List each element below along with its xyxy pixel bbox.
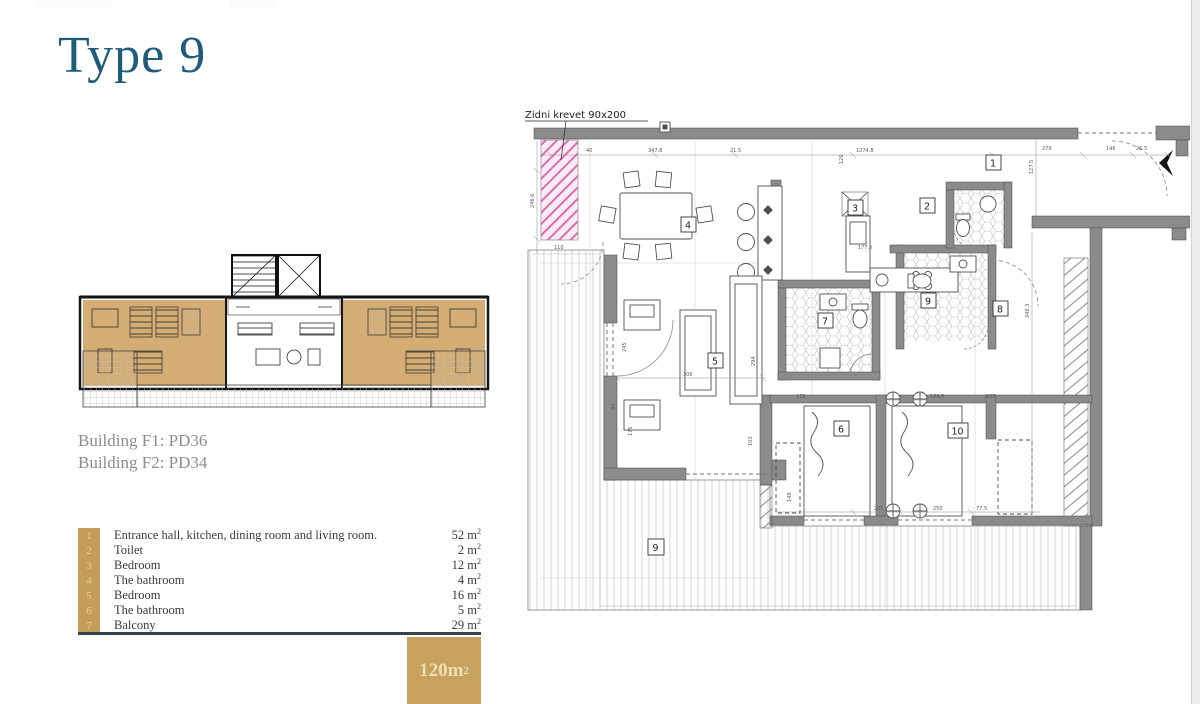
svg-text:1274.8: 1274.8 — [856, 148, 874, 154]
legend-area: 16 m2 — [417, 587, 481, 603]
legend-area: 52 m2 — [417, 527, 481, 543]
legend-label: Toilet — [100, 543, 417, 558]
legend-num: 3 — [78, 558, 100, 573]
svg-text:250: 250 — [933, 506, 943, 512]
svg-text:347.8: 347.8 — [648, 148, 662, 154]
legend-label: Bedroom — [100, 558, 417, 573]
building-f2: Building F2: PD34 — [78, 452, 207, 474]
entrance-arrow-icon — [1159, 150, 1173, 176]
wall-bed-annotation: Zidni krevet 90x200 — [525, 110, 626, 121]
legend-row: 6 The bathroom 5 m2 — [78, 603, 481, 618]
svg-text:10: 10 — [952, 427, 964, 438]
svg-text:127.5: 127.5 — [1029, 160, 1035, 174]
svg-text:26.5: 26.5 — [1136, 146, 1147, 152]
legend-row: 7 Balcony 29 m2 — [78, 618, 481, 633]
header-remnant-2 — [229, 0, 276, 7]
svg-text:94: 94 — [611, 404, 617, 410]
svg-text:146: 146 — [1106, 146, 1116, 152]
legend-num: 7 — [78, 618, 100, 633]
svg-text:103: 103 — [748, 436, 754, 446]
overview-floorplan — [78, 253, 490, 416]
svg-text:122: 122 — [796, 394, 806, 400]
page-title: Type 9 — [58, 26, 206, 85]
legend-row: 3 Bedroom 12 m2 — [78, 558, 481, 573]
legend-label: Balcony — [100, 618, 417, 633]
building-labels: Building F1: PD36 Building F2: PD34 — [78, 430, 207, 475]
svg-text:177.5: 177.5 — [858, 245, 872, 251]
legend-label: The bathroom — [100, 573, 417, 588]
legend-label: The bathroom — [100, 603, 417, 618]
svg-text:3: 3 — [852, 204, 858, 215]
svg-text:7: 7 — [822, 317, 828, 328]
room-legend: 1 Entrance hall, kitchen, dining room an… — [78, 528, 481, 633]
legend-area: 2 m2 — [417, 542, 481, 558]
legend-num: 6 — [78, 603, 100, 618]
legend-area: 12 m2 — [417, 557, 481, 573]
building-f1: Building F1: PD36 — [78, 430, 207, 452]
legend-num: 2 — [78, 543, 100, 558]
legend-row: 4 The bathroom 4 m2 — [78, 573, 481, 588]
legend-num: 1 — [78, 528, 100, 543]
legend-area: 4 m2 — [417, 572, 481, 588]
legend-area: 5 m2 — [417, 602, 481, 618]
stair-hatch — [1064, 258, 1088, 526]
svg-text:77.5: 77.5 — [976, 506, 987, 512]
svg-text:306: 306 — [683, 372, 693, 378]
svg-text:6: 6 — [838, 425, 844, 436]
svg-text:9: 9 — [925, 297, 931, 308]
svg-text:279: 279 — [1042, 146, 1052, 152]
legend-num: 5 — [78, 588, 100, 603]
svg-text:126: 126 — [839, 154, 845, 164]
header-remnant-1 — [35, 0, 111, 7]
svg-text:108: 108 — [986, 394, 996, 400]
svg-text:148: 148 — [787, 492, 793, 502]
svg-text:348.3: 348.3 — [1025, 304, 1031, 318]
svg-text:169.5: 169.5 — [930, 394, 944, 400]
svg-text:1: 1 — [990, 159, 996, 170]
svg-text:205: 205 — [874, 506, 884, 512]
svg-text:21.5: 21.5 — [730, 148, 741, 154]
legend-label: Bedroom — [100, 588, 417, 603]
legend-row: 1 Entrance hall, kitchen, dining room an… — [78, 528, 481, 543]
svg-text:9: 9 — [653, 543, 659, 554]
legend-divider — [78, 632, 481, 635]
legend-label: Entrance hall, kitchen, dining room and … — [100, 528, 417, 543]
svg-text:110: 110 — [554, 245, 564, 251]
svg-text:175: 175 — [628, 426, 634, 436]
total-area-badge: 120m2 — [407, 637, 481, 704]
detailed-floorplan: Zidni krevet 90x200 — [520, 108, 1190, 648]
svg-text:294: 294 — [751, 356, 757, 366]
svg-text:245: 245 — [622, 342, 628, 352]
page-edge — [1191, 0, 1200, 704]
svg-text:8: 8 — [997, 305, 1003, 316]
svg-text:40: 40 — [586, 148, 592, 154]
svg-text:246.6: 246.6 — [530, 194, 536, 208]
svg-text:5: 5 — [712, 357, 718, 368]
svg-text:4: 4 — [685, 221, 691, 232]
svg-text:2: 2 — [924, 202, 930, 213]
legend-row: 2 Toilet 2 m2 — [78, 543, 481, 558]
legend-num: 4 — [78, 573, 100, 588]
legend-row: 5 Bedroom 16 m2 — [78, 588, 481, 603]
